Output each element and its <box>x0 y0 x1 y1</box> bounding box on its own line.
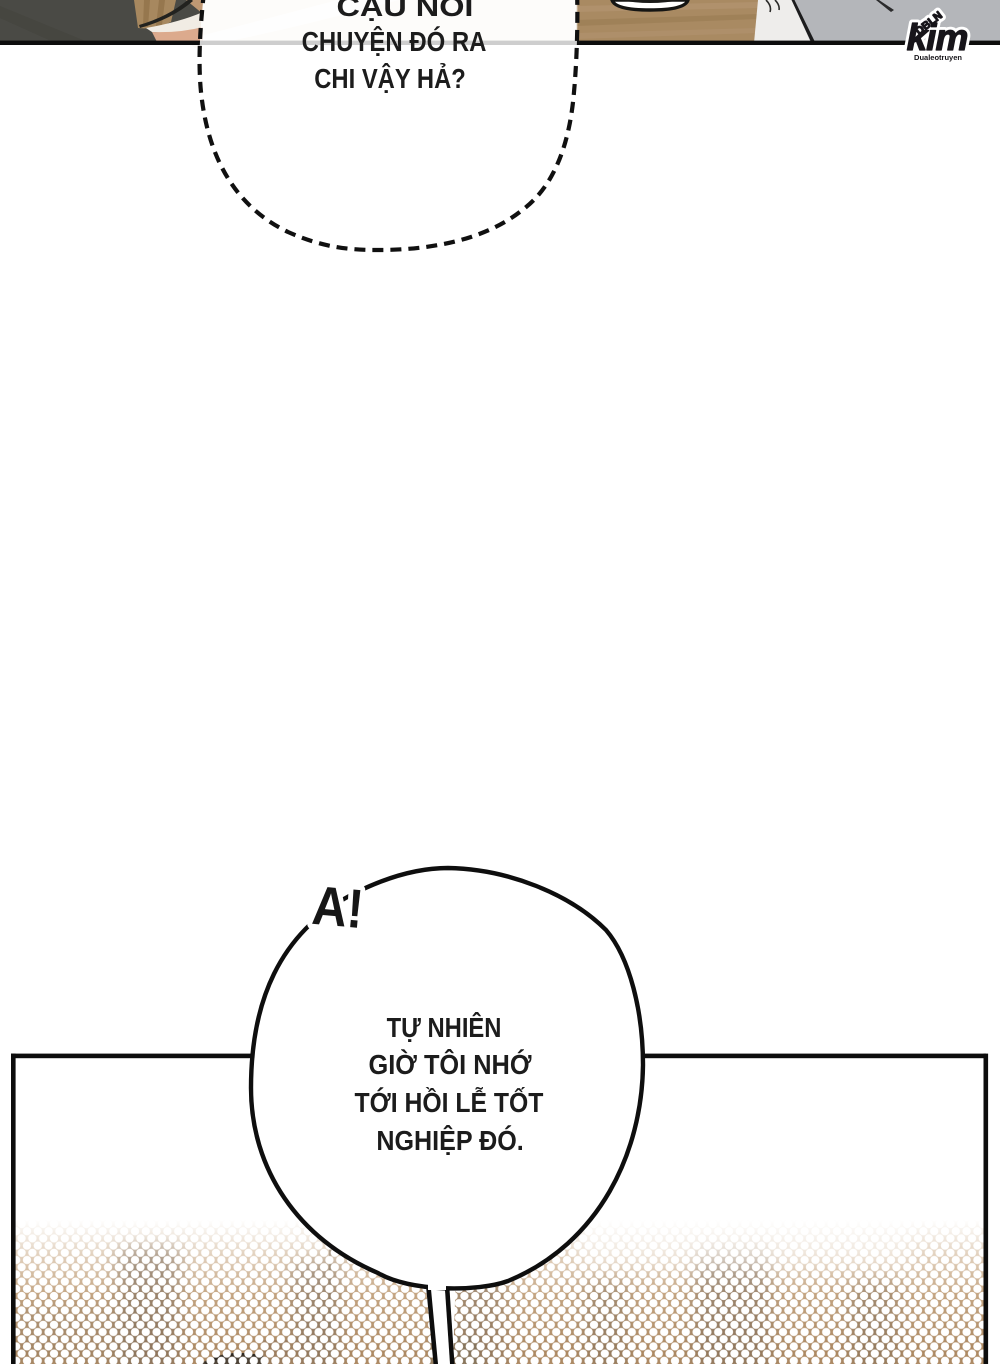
svg-text:TỚI HỒI LỄ TỐT: TỚI HỒI LỄ TỐT <box>354 1087 543 1119</box>
svg-text:TỰ NHIÊN: TỰ NHIÊN <box>387 1011 502 1043</box>
svg-text:A!: A! <box>310 874 366 940</box>
svg-text:GIỜ TÔI NHỚ: GIỜ TÔI NHỚ <box>369 1048 532 1080</box>
svg-text:CHI VẬY HẢ?: CHI VẬY HẢ? <box>314 62 466 94</box>
svg-text:Dualeotruyen: Dualeotruyen <box>914 53 962 62</box>
svg-text:CẬU NÓI: CẬU NÓI <box>336 0 473 22</box>
svg-text:CHUYỆN ĐÓ RA: CHUYỆN ĐÓ RA <box>302 25 487 57</box>
svg-text:NGHIỆP ĐÓ.: NGHIỆP ĐÓ. <box>376 1125 523 1157</box>
